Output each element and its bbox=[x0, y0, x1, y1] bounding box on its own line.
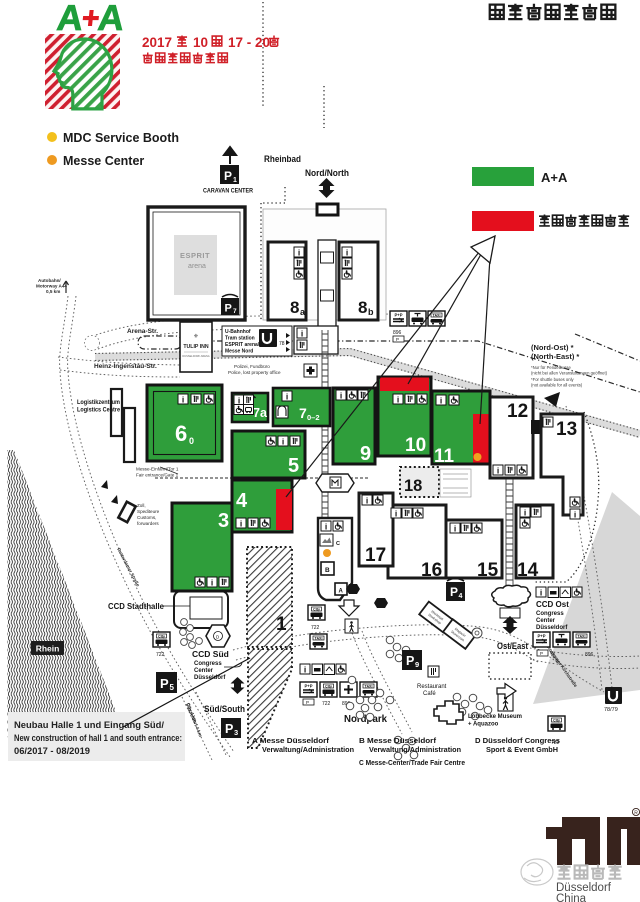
svg-text:P: P bbox=[396, 337, 399, 342]
svg-text:P: P bbox=[225, 722, 233, 736]
svg-text:18: 18 bbox=[404, 477, 422, 495]
svg-text:10: 10 bbox=[405, 435, 426, 456]
svg-text:896: 896 bbox=[585, 652, 594, 658]
svg-text:3: 3 bbox=[234, 728, 238, 737]
svg-text:0–2: 0–2 bbox=[307, 413, 320, 422]
svg-text:CCD Stadthalle: CCD Stadthalle bbox=[108, 601, 164, 611]
svg-text:Congress: Congress bbox=[536, 611, 564, 617]
svg-text:China: China bbox=[556, 893, 587, 902]
svg-text:Zoll,: Zoll, bbox=[137, 503, 146, 508]
svg-text:12: 12 bbox=[507, 401, 528, 422]
svg-text:Nord/North: Nord/North bbox=[305, 168, 349, 179]
svg-text:0,5 km: 0,5 km bbox=[46, 289, 60, 294]
svg-text:(Nord-Ost) *: (Nord-Ost) * bbox=[531, 343, 574, 352]
svg-text:11: 11 bbox=[434, 446, 455, 467]
svg-text:Center: Center bbox=[194, 668, 214, 674]
svg-text:Neubau Halle 1 und Eingang Süd: Neubau Halle 1 und Eingang Süd/ bbox=[14, 720, 164, 730]
svg-text:forwarders: forwarders bbox=[137, 521, 159, 526]
svg-text:Customs,: Customs, bbox=[137, 515, 156, 520]
svg-text:TULIP INN: TULIP INN bbox=[183, 344, 209, 350]
svg-text:⚜: ⚜ bbox=[193, 333, 198, 340]
svg-text:Düsseldorf: Düsseldorf bbox=[536, 625, 568, 631]
svg-text:Messe Center: Messe Center bbox=[63, 154, 144, 168]
svg-text:17 - 20: 17 - 20 bbox=[228, 35, 270, 50]
svg-text:Nordpark: Nordpark bbox=[344, 713, 387, 725]
svg-text:5: 5 bbox=[288, 455, 299, 477]
svg-text:5: 5 bbox=[170, 683, 175, 692]
svg-text:Logistics Centre: Logistics Centre bbox=[77, 408, 121, 414]
svg-text:U-Bahnhof: U-Bahnhof bbox=[225, 329, 251, 335]
svg-text:CCD Ost: CCD Ost bbox=[536, 600, 569, 609]
svg-text:1: 1 bbox=[276, 614, 287, 635]
svg-text:A Messe Düsseldorf: A Messe Düsseldorf bbox=[252, 736, 330, 745]
svg-text:P: P bbox=[225, 303, 232, 315]
svg-text:3: 3 bbox=[218, 510, 229, 532]
svg-text:Süd/South: Süd/South bbox=[204, 704, 245, 715]
svg-text:ESPRIT arena/: ESPRIT arena/ bbox=[225, 342, 260, 348]
svg-text:P: P bbox=[450, 585, 458, 599]
svg-text:CCD Süd: CCD Süd bbox=[192, 649, 229, 659]
svg-text:C: C bbox=[336, 541, 340, 547]
svg-text:9: 9 bbox=[415, 660, 419, 669]
svg-text:Sport & Event GmbH: Sport & Event GmbH bbox=[486, 745, 558, 754]
svg-text:78: 78 bbox=[279, 341, 285, 347]
svg-text:17: 17 bbox=[365, 545, 386, 566]
svg-text:Motorway A44: Motorway A44 bbox=[36, 284, 67, 289]
svg-text:P: P bbox=[224, 169, 232, 183]
svg-text:722: 722 bbox=[311, 625, 320, 631]
svg-text:10: 10 bbox=[193, 35, 208, 50]
svg-text:896: 896 bbox=[393, 330, 402, 336]
svg-text:Police, lost property office: Police, lost property office bbox=[228, 370, 281, 375]
svg-text:8: 8 bbox=[290, 298, 299, 317]
svg-text:7: 7 bbox=[299, 405, 307, 421]
svg-text:14: 14 bbox=[517, 560, 539, 581]
svg-text:+ Aquazoo: + Aquazoo bbox=[468, 722, 499, 728]
svg-text:13: 13 bbox=[556, 419, 577, 440]
svg-text:b: b bbox=[368, 307, 374, 317]
svg-text:P: P bbox=[306, 700, 309, 705]
svg-text:Fair entrance/Gate 1: Fair entrance/Gate 1 bbox=[136, 473, 179, 478]
svg-text:Rhein: Rhein bbox=[36, 644, 60, 654]
svg-text:0: 0 bbox=[189, 436, 194, 446]
svg-text:CARAVAN CENTER: CARAVAN CENTER bbox=[203, 188, 253, 195]
svg-text:A: A bbox=[339, 589, 344, 595]
svg-text:8: 8 bbox=[358, 298, 367, 317]
svg-text:C Messe-Center/Trade Fair Cen: C Messe-Center/Trade Fair Centre bbox=[359, 758, 465, 767]
svg-text:ESPRIT: ESPRIT bbox=[180, 251, 210, 260]
svg-text:Logistikzentrum: Logistikzentrum bbox=[77, 400, 120, 406]
svg-text:78/79: 78/79 bbox=[604, 707, 618, 713]
svg-text:*Nur für Pendelbusse: *Nur für Pendelbusse bbox=[531, 365, 571, 370]
svg-text:Spediteure: Spediteure bbox=[137, 509, 160, 514]
svg-text:Löbbecke Museum: Löbbecke Museum bbox=[468, 714, 522, 720]
svg-text:Messe-Einfahrt/Tor 1: Messe-Einfahrt/Tor 1 bbox=[136, 467, 179, 472]
svg-text:4: 4 bbox=[236, 490, 248, 512]
svg-text:(not available for all events): (not available for all events) bbox=[531, 383, 583, 388]
svg-text:7: 7 bbox=[233, 308, 237, 315]
svg-text:*For shuttle buses only: *For shuttle buses only bbox=[531, 377, 575, 382]
svg-text:(North-East) *: (North-East) * bbox=[531, 352, 579, 361]
svg-text:2017: 2017 bbox=[142, 35, 172, 50]
svg-text:P: P bbox=[160, 676, 169, 691]
svg-text:9: 9 bbox=[360, 443, 371, 465]
svg-text:B: B bbox=[325, 567, 330, 574]
svg-text:Arena-Str.: Arena-Str. bbox=[127, 328, 158, 335]
svg-text:722: 722 bbox=[322, 701, 331, 707]
svg-text:16: 16 bbox=[421, 560, 442, 581]
svg-text:Messe Nord: Messe Nord bbox=[225, 349, 253, 355]
svg-text:7a: 7a bbox=[253, 406, 268, 420]
svg-text:Congress: Congress bbox=[194, 661, 222, 667]
svg-text:D Düsseldorf Congress: D Düsseldorf Congress bbox=[475, 736, 560, 745]
svg-text:1: 1 bbox=[233, 177, 237, 184]
svg-text:Center: Center bbox=[536, 618, 556, 624]
svg-text:R: R bbox=[634, 811, 638, 817]
svg-text:Polizei, Fundbüro: Polizei, Fundbüro bbox=[234, 364, 270, 369]
svg-text:Ost/East: Ost/East bbox=[497, 641, 529, 652]
svg-text:A: A bbox=[96, 0, 126, 38]
svg-text:(nicht bei allen Veranstaltung: (nicht bei allen Veranstaltungen geöffne… bbox=[531, 371, 608, 376]
svg-text:DUSSELDORF ARENA: DUSSELDORF ARENA bbox=[182, 354, 210, 358]
svg-text:Verwaltung/Administration: Verwaltung/Administration bbox=[262, 745, 354, 754]
svg-text:Restaurant: Restaurant bbox=[417, 684, 447, 690]
svg-text:4: 4 bbox=[459, 593, 463, 600]
svg-text:B Messe Düsseldorf: B Messe Düsseldorf bbox=[359, 736, 437, 745]
svg-text:Autobahn/: Autobahn/ bbox=[38, 278, 61, 283]
svg-text:P: P bbox=[540, 651, 543, 656]
svg-text:722: 722 bbox=[156, 652, 165, 658]
svg-text:P: P bbox=[406, 654, 414, 668]
svg-text:Heinz-Ingenstau-Str.: Heinz-Ingenstau-Str. bbox=[94, 363, 157, 370]
svg-text:Tram station: Tram station bbox=[225, 336, 255, 342]
svg-text:6: 6 bbox=[175, 421, 187, 446]
svg-text:New construction of hall 1 and: New construction of hall 1 and south ent… bbox=[14, 733, 182, 743]
svg-text:A+A: A+A bbox=[541, 170, 568, 185]
svg-text:Verwaltung/Administration: Verwaltung/Administration bbox=[369, 745, 461, 754]
svg-text:06/2017 - 08/2019: 06/2017 - 08/2019 bbox=[14, 746, 90, 756]
svg-text:MDC Service Booth: MDC Service Booth bbox=[63, 131, 179, 145]
svg-text:Café: Café bbox=[423, 691, 436, 697]
svg-text:arena: arena bbox=[188, 263, 206, 270]
svg-text:Rheinbad: Rheinbad bbox=[264, 154, 301, 165]
svg-text:15: 15 bbox=[477, 560, 499, 581]
